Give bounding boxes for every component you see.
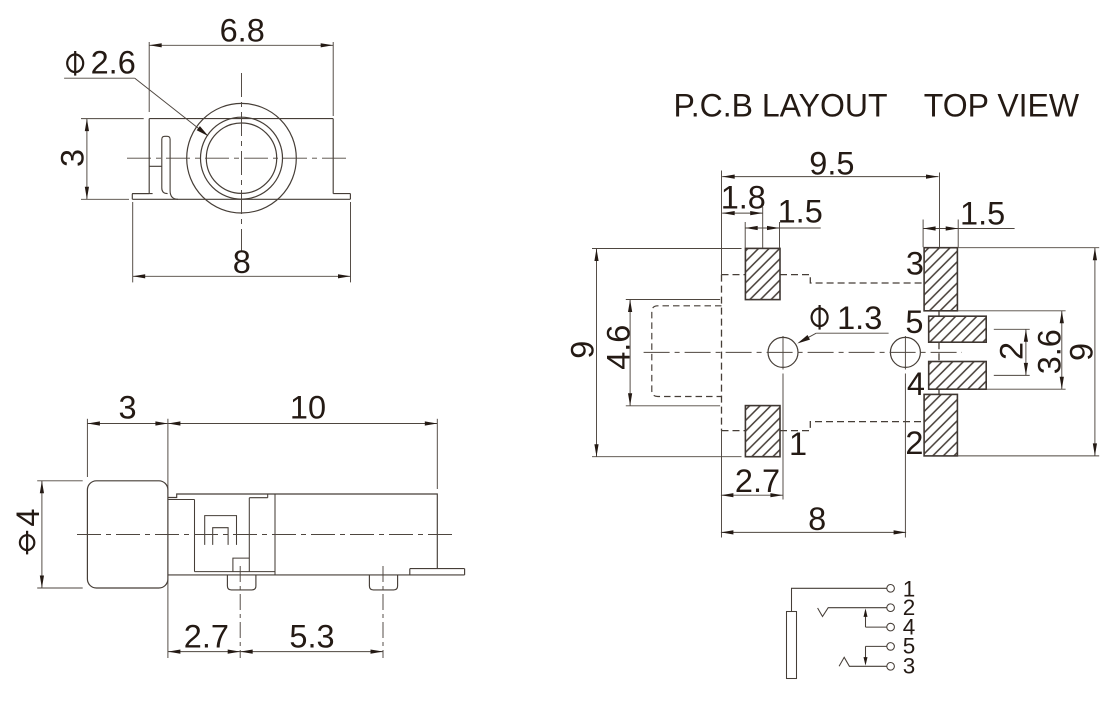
svg-text:1: 1 bbox=[789, 426, 807, 462]
svg-text:3: 3 bbox=[54, 149, 90, 167]
svg-text:5: 5 bbox=[905, 304, 923, 340]
svg-text:6.8: 6.8 bbox=[220, 13, 265, 49]
svg-text:3: 3 bbox=[906, 245, 924, 281]
svg-text:2.7: 2.7 bbox=[735, 463, 780, 499]
svg-text:9: 9 bbox=[565, 341, 601, 359]
svg-text:5.3: 5.3 bbox=[289, 619, 334, 655]
svg-text:2: 2 bbox=[994, 342, 1030, 360]
svg-text:3: 3 bbox=[903, 653, 916, 678]
svg-text:4: 4 bbox=[907, 366, 925, 402]
svg-text:8: 8 bbox=[808, 501, 826, 537]
svg-text:3: 3 bbox=[118, 390, 136, 426]
svg-text:9.5: 9.5 bbox=[809, 145, 854, 181]
svg-text:10: 10 bbox=[290, 390, 326, 426]
svg-text:2.7: 2.7 bbox=[184, 618, 229, 654]
svg-text:4.6: 4.6 bbox=[601, 325, 637, 370]
svg-text:P.C.B LAYOUT: P.C.B LAYOUT bbox=[674, 88, 888, 124]
svg-text:8: 8 bbox=[233, 244, 251, 280]
svg-text:2: 2 bbox=[905, 425, 923, 461]
svg-text:2.6: 2.6 bbox=[91, 44, 136, 80]
svg-text:4: 4 bbox=[10, 509, 46, 527]
svg-text:TOP VIEW: TOP VIEW bbox=[924, 88, 1080, 124]
svg-text:1.5: 1.5 bbox=[960, 196, 1005, 232]
svg-text:9: 9 bbox=[1063, 343, 1099, 361]
svg-text:1.5: 1.5 bbox=[778, 194, 823, 230]
svg-text:1.3: 1.3 bbox=[837, 300, 882, 336]
svg-text:3.6: 3.6 bbox=[1032, 329, 1068, 374]
svg-text:1.8: 1.8 bbox=[721, 180, 766, 216]
